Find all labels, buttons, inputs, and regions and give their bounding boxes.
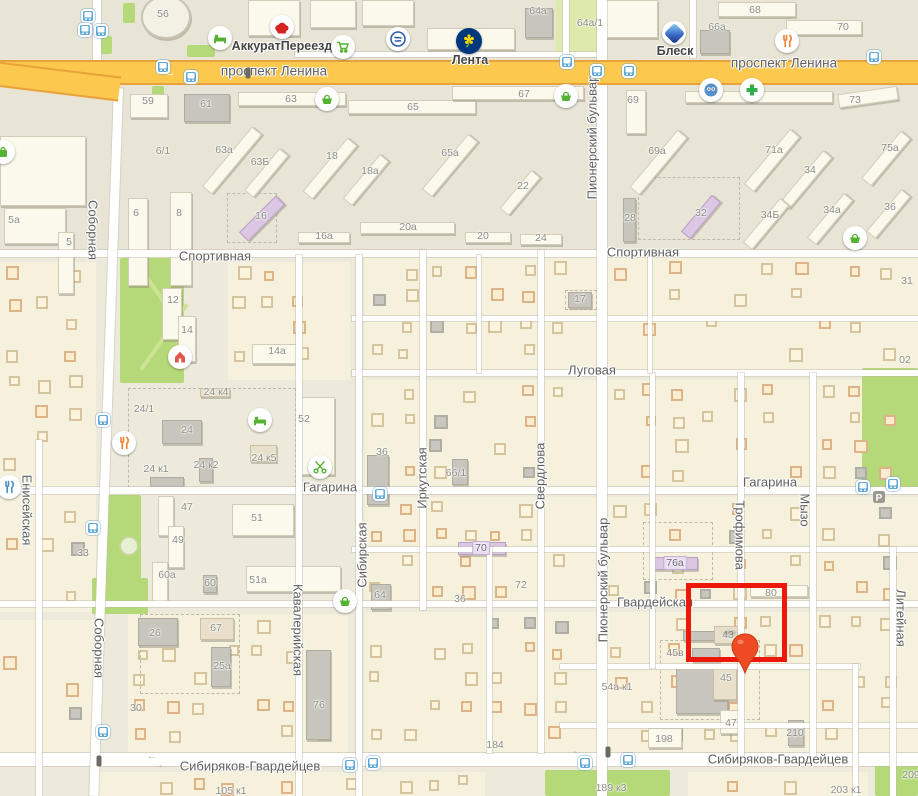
- akkurat-logo[interactable]: [270, 15, 294, 39]
- hotel-bed-icon[interactable]: [208, 26, 232, 50]
- house: [6, 538, 19, 551]
- building-number: 33: [77, 547, 89, 559]
- building-number: 209: [902, 769, 918, 781]
- house: [823, 466, 836, 479]
- street-label-vertical: Пионерский бульвар: [585, 75, 600, 200]
- building-number: 105 к1: [216, 785, 247, 796]
- transit-stop-icon[interactable]: [86, 521, 100, 535]
- pharmacy-cross-icon[interactable]: [740, 78, 764, 102]
- house: [789, 348, 803, 362]
- building: [306, 650, 331, 740]
- building-number: 24: [535, 232, 547, 244]
- house: [525, 642, 535, 652]
- house: [850, 412, 861, 423]
- house: [38, 380, 51, 393]
- street-vertical: [810, 373, 816, 757]
- building: [150, 477, 184, 487]
- building: [168, 526, 184, 568]
- house: [553, 387, 563, 397]
- house: [490, 701, 502, 713]
- house: [371, 729, 382, 740]
- house: [402, 555, 413, 566]
- building-number: 16: [255, 210, 267, 222]
- street-label-vertical: Енисейская: [20, 475, 35, 546]
- street-label: Гагарина: [303, 480, 357, 495]
- house: [64, 351, 76, 363]
- house: [524, 617, 536, 629]
- map-canvas[interactable]: ←→←→←→←→проспект Ленинапроспект ЛенинаСп…: [0, 0, 918, 796]
- building-number: 63а: [215, 144, 233, 156]
- house: [403, 529, 416, 542]
- house: [405, 414, 415, 424]
- house: [69, 408, 82, 421]
- house: [734, 294, 747, 307]
- house: [819, 615, 832, 628]
- house: [552, 649, 563, 660]
- building-number: 5а: [8, 214, 20, 226]
- house: [878, 534, 890, 546]
- house: [673, 417, 685, 429]
- basket-icon[interactable]: [333, 589, 357, 613]
- building-number: 67: [518, 88, 530, 100]
- transit-stop-icon[interactable]: [856, 480, 870, 494]
- house: [548, 726, 561, 739]
- scissors-icon[interactable]: [308, 455, 332, 479]
- street-label: Спортивная: [179, 249, 251, 264]
- building-number: 34Б: [761, 209, 780, 221]
- house: [671, 389, 683, 401]
- building-number: 59: [142, 95, 154, 107]
- house: [824, 561, 834, 571]
- house: [855, 467, 867, 479]
- house: [432, 586, 443, 597]
- house: [406, 269, 419, 282]
- house: [135, 728, 147, 740]
- house: [461, 701, 472, 712]
- building-number: 36: [884, 201, 896, 213]
- house: [169, 731, 181, 743]
- building-number: 20: [477, 230, 489, 242]
- transit-stop-icon[interactable]: [94, 24, 108, 38]
- transit-stop-icon[interactable]: [560, 55, 574, 69]
- building-number: 66а: [708, 21, 726, 33]
- house: [462, 643, 473, 654]
- building-number: 17: [574, 293, 586, 305]
- house: [371, 413, 385, 427]
- house: [264, 271, 274, 281]
- building-number: 76: [313, 699, 325, 711]
- transit-stop-icon[interactable]: [156, 60, 170, 74]
- house: [436, 528, 447, 539]
- house: [283, 701, 294, 712]
- house: [430, 700, 440, 710]
- house: [555, 701, 567, 713]
- house: [762, 384, 773, 395]
- house: [790, 555, 801, 566]
- building: [362, 0, 414, 26]
- house: [398, 349, 408, 359]
- street-vertical: [650, 373, 655, 668]
- house: [763, 412, 773, 422]
- building-number: 28: [624, 212, 636, 224]
- house: [35, 405, 48, 418]
- house: [854, 440, 868, 454]
- house: [369, 671, 379, 681]
- building-number: 69а: [648, 145, 666, 157]
- street-vertical: [477, 255, 481, 373]
- street-horizontal: [0, 250, 918, 257]
- house: [434, 648, 446, 660]
- house: [257, 699, 270, 712]
- building-number: 52: [298, 413, 310, 425]
- house: [610, 647, 621, 658]
- street-label: Луговая: [568, 363, 616, 378]
- house: [465, 266, 477, 278]
- lenta-logo[interactable]: [456, 28, 482, 54]
- house: [795, 262, 809, 276]
- building-number: 34: [804, 164, 816, 176]
- house: [554, 672, 568, 686]
- building-number: 34а: [823, 204, 841, 216]
- house: [400, 504, 412, 516]
- house: [555, 621, 569, 635]
- house: [850, 322, 861, 333]
- building-number: 24 к5: [251, 452, 276, 464]
- house: [848, 386, 860, 398]
- building-number: 14: [181, 324, 193, 336]
- building-number: 24: [181, 424, 193, 436]
- building-number: 24 к4: [203, 386, 228, 398]
- house: [884, 415, 895, 426]
- park-area: [123, 3, 135, 23]
- building-number: 75а: [881, 142, 899, 154]
- house: [880, 268, 892, 280]
- house: [490, 531, 500, 541]
- house: [525, 416, 536, 427]
- building-number: 51: [251, 512, 263, 524]
- house: [488, 319, 502, 333]
- building-number: 6: [133, 207, 139, 219]
- building-number: 24 к1: [143, 463, 168, 475]
- house: [762, 529, 772, 539]
- house: [822, 439, 833, 450]
- house: [465, 672, 478, 685]
- building-number: 61: [200, 98, 212, 110]
- house: [883, 348, 895, 360]
- building-number: 32: [695, 207, 707, 219]
- street-vertical: [36, 440, 42, 796]
- building-number: 51а: [249, 574, 267, 586]
- street-label: Спортивная: [607, 245, 679, 260]
- street-label-vertical: Кавалерийская: [291, 584, 306, 676]
- house: [372, 344, 383, 355]
- house: [370, 645, 383, 658]
- house: [192, 703, 204, 715]
- house: [494, 443, 506, 455]
- transit-stop-icon[interactable]: [578, 756, 592, 770]
- building-number: 26: [149, 627, 161, 639]
- transit-stop-icon[interactable]: [96, 413, 110, 427]
- house: [822, 528, 835, 541]
- basket-icon[interactable]: [843, 226, 867, 250]
- park-area: [187, 45, 215, 57]
- house: [6, 350, 19, 363]
- basket-icon[interactable]: [315, 87, 339, 111]
- house: [851, 616, 862, 627]
- building-number: 60: [204, 577, 216, 589]
- house: [167, 701, 180, 714]
- house: [3, 656, 16, 669]
- building-number: 20а: [399, 221, 417, 233]
- street-vertical: [420, 250, 426, 610]
- residential-quarter: [0, 620, 96, 752]
- house: [825, 727, 838, 740]
- house: [522, 385, 533, 396]
- restaurant-icon[interactable]: [775, 29, 799, 53]
- building-number: 31: [901, 275, 913, 287]
- street-label-vertical: Соборная: [86, 200, 101, 260]
- transit-stop-icon[interactable]: [184, 70, 198, 84]
- building-number: 184: [486, 739, 504, 751]
- svg-text:P: P: [876, 493, 883, 504]
- building-number: 22: [517, 180, 529, 192]
- house: [430, 320, 443, 333]
- building-number: 18: [326, 150, 338, 162]
- owl-logo[interactable]: [699, 78, 723, 102]
- building-number: 68: [749, 4, 761, 16]
- street-vertical: [853, 664, 858, 796]
- building-number: 5: [66, 236, 72, 248]
- street-label: проспект Ленина: [731, 56, 837, 71]
- street-label: проспект Ленина: [221, 64, 327, 79]
- building-number: 47: [181, 501, 193, 513]
- building-number: 56: [157, 8, 169, 20]
- house: [641, 701, 653, 713]
- house: [406, 289, 419, 302]
- building-number: 14а: [268, 345, 286, 357]
- house: [552, 322, 563, 333]
- house: [463, 391, 475, 403]
- building-number: 63: [285, 93, 297, 105]
- house: [238, 266, 252, 280]
- transit-stop-icon[interactable]: [78, 23, 92, 37]
- street-vertical: [648, 255, 652, 373]
- house: [6, 266, 19, 279]
- house: [194, 778, 206, 790]
- house: [491, 672, 503, 684]
- building-number: 203 к1: [831, 784, 862, 796]
- house: [672, 470, 684, 482]
- building-number: 36: [376, 446, 388, 458]
- cart-icon[interactable]: [331, 35, 355, 59]
- building-number: 60а: [158, 569, 176, 581]
- house: [402, 322, 412, 332]
- street-label-vertical: Литейная: [894, 589, 909, 647]
- building-number: 63Б: [251, 156, 270, 168]
- building-number: 72: [515, 579, 527, 591]
- hotel-bed-icon[interactable]: [248, 408, 272, 432]
- traffic-light-icon: [606, 747, 611, 758]
- house: [64, 511, 76, 523]
- house: [850, 266, 861, 277]
- building-number: 64а/1: [577, 17, 603, 29]
- house: [36, 296, 49, 309]
- house: [614, 389, 625, 400]
- street-label-vertical: Пионерский бульвар: [596, 518, 611, 643]
- house: [761, 263, 773, 275]
- traffic-light-icon: [97, 756, 102, 767]
- traffic-light-icon: [246, 68, 251, 79]
- street-label: Гагарина: [743, 475, 797, 490]
- transit-stop-icon[interactable]: [366, 756, 380, 770]
- house: [553, 554, 565, 566]
- house: [614, 268, 627, 281]
- house: [822, 700, 834, 712]
- building-number: 45в: [666, 647, 683, 659]
- poi-label[interactable]: Блеск: [657, 44, 694, 58]
- building-number: 54а к1: [602, 681, 633, 693]
- house: [524, 344, 535, 355]
- street-label: Сибиряков-Гвардейцев: [708, 752, 849, 767]
- diamond-logo[interactable]: [662, 21, 686, 45]
- house: [234, 351, 245, 362]
- building-number: 70: [472, 541, 490, 555]
- building-number: 70: [837, 21, 849, 33]
- street-vertical: [890, 547, 896, 796]
- building-number: 73: [849, 94, 861, 106]
- transit-stop-icon[interactable]: [343, 758, 357, 772]
- house: [784, 781, 797, 794]
- transit-stop-icon[interactable]: [373, 487, 387, 501]
- house: [466, 323, 477, 334]
- building-number: 47: [725, 717, 737, 729]
- house: [9, 376, 19, 386]
- house: [856, 581, 868, 593]
- building-number: 24/1: [134, 403, 154, 415]
- house: [281, 725, 293, 737]
- building-number: 30: [130, 702, 142, 714]
- house: [791, 288, 801, 298]
- building-number: 02: [899, 354, 911, 366]
- house: [429, 780, 439, 790]
- house: [554, 261, 567, 274]
- street-vertical: [487, 547, 492, 753]
- house: [404, 729, 417, 742]
- building: [786, 20, 862, 35]
- house: [823, 385, 836, 398]
- building-number: 24 к2: [193, 459, 218, 471]
- basket-icon[interactable]: [554, 84, 578, 108]
- house: [69, 375, 82, 388]
- transit-stop-icon[interactable]: [622, 64, 636, 78]
- poi-label[interactable]: АккуратПереезд: [232, 39, 333, 53]
- building-number: 8: [176, 207, 182, 219]
- house: [702, 411, 713, 422]
- building-number: 76а: [663, 556, 687, 570]
- house: [519, 504, 533, 518]
- building: [310, 0, 356, 28]
- house: [251, 645, 262, 656]
- building: [598, 0, 658, 38]
- street-horizontal: [352, 316, 918, 321]
- park-area: [100, 36, 112, 54]
- street-label: Сибиряков-Гвардейцев: [180, 759, 321, 774]
- restaurant-icon[interactable]: [112, 431, 136, 455]
- house: [3, 458, 16, 471]
- building-number: 71а: [765, 144, 783, 156]
- transit-stop-icon[interactable]: [81, 9, 95, 23]
- building-number: 18а: [361, 165, 379, 177]
- house: [727, 781, 738, 792]
- house: [879, 507, 891, 519]
- house: [704, 729, 715, 740]
- house: [66, 319, 77, 330]
- house: [400, 781, 413, 794]
- house: [524, 703, 537, 716]
- house: [261, 296, 273, 308]
- house: [521, 529, 533, 541]
- house: [669, 289, 680, 300]
- house: [431, 501, 443, 513]
- house: [458, 775, 468, 785]
- building-number: 64а: [529, 5, 547, 17]
- street-vertical: [563, 0, 569, 58]
- building-number: 67: [210, 622, 222, 634]
- house: [522, 291, 535, 304]
- building-number: 198: [655, 733, 673, 745]
- house: [404, 389, 415, 400]
- house: [9, 299, 22, 312]
- building-number: 210: [786, 727, 804, 739]
- building-number: 65а: [441, 147, 459, 159]
- building-number: 6/1: [156, 145, 171, 157]
- building-number: 189 к3: [596, 782, 627, 794]
- house: [429, 439, 442, 452]
- street-label-vertical: Иркутская: [415, 447, 430, 508]
- house: [371, 531, 382, 542]
- transit-stop-icon[interactable]: [96, 725, 110, 739]
- street-label-vertical: Соборная: [92, 618, 107, 678]
- house: [257, 620, 271, 634]
- transit-stop-icon[interactable]: [886, 477, 900, 491]
- house: [460, 556, 471, 567]
- house: [281, 781, 293, 793]
- street-horizontal: [352, 370, 918, 376]
- street-label-vertical: Сибирская: [355, 522, 370, 587]
- house-red-icon[interactable]: [168, 345, 192, 369]
- house: [525, 265, 536, 276]
- street-label-vertical: Мызо: [798, 493, 813, 526]
- transit-stop-icon[interactable]: [867, 50, 881, 64]
- building-number: 65: [407, 101, 419, 113]
- house: [373, 294, 386, 307]
- brand-logo[interactable]: [386, 27, 410, 51]
- street-horizontal: [352, 547, 918, 552]
- poi-label[interactable]: Лента: [452, 53, 488, 67]
- street-vertical: [296, 255, 302, 796]
- house: [789, 644, 803, 658]
- house: [613, 505, 627, 519]
- house: [465, 530, 476, 541]
- transit-stop-icon[interactable]: [621, 753, 635, 767]
- building-number: 64: [374, 589, 386, 601]
- house: [432, 266, 443, 277]
- house: [669, 261, 681, 273]
- house: [675, 439, 689, 453]
- building-number: 69: [627, 94, 639, 106]
- right-arrow-icon: →: [154, 759, 165, 771]
- transit-stop-icon[interactable]: [590, 64, 604, 78]
